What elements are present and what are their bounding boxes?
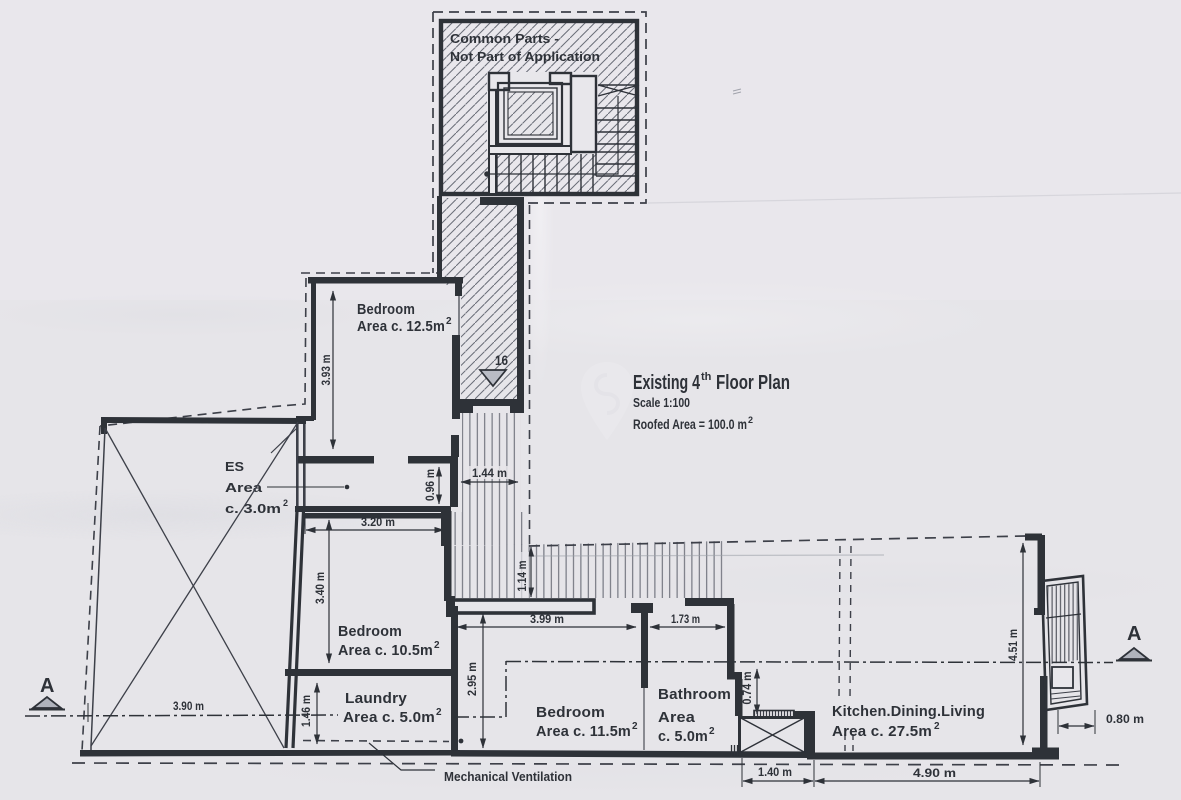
svg-text:Area c. 12.5m: Area c. 12.5m [357,318,445,335]
svg-text:4.51 m: 4.51 m [1008,629,1020,661]
svg-text:Not Part of Application: Not Part of Application [450,49,600,64]
svg-text:2.95 m: 2.95 m [467,662,479,696]
svg-text:1.14 m: 1.14 m [517,561,529,592]
svg-text:3.20 m: 3.20 m [361,517,395,529]
svg-text:1.73 m: 1.73 m [671,614,700,626]
svg-text:Floor Plan: Floor Plan [716,372,790,394]
svg-text:1.40 m: 1.40 m [758,767,792,779]
svg-text:Bedroom: Bedroom [338,623,402,640]
svg-text:Bedroom: Bedroom [357,301,415,318]
svg-text:0.74 m: 0.74 m [742,672,754,705]
svg-text:ES: ES [225,459,244,474]
svg-text:Area c. 10.5m: Area c. 10.5m [338,642,433,659]
svg-text:A: A [40,675,54,697]
svg-text:Area c. 27.5m: Area c. 27.5m [832,723,932,740]
svg-text:Area: Area [658,709,695,726]
svg-text:Bathroom: Bathroom [658,686,731,703]
svg-text:Area c. 11.5m: Area c. 11.5m [536,723,631,740]
svg-text:3.93 m: 3.93 m [321,355,333,386]
svg-text:2: 2 [446,316,452,327]
svg-text:3.40 m: 3.40 m [315,572,327,604]
svg-text:16: 16 [495,352,508,368]
svg-text:c. 3.0m: c. 3.0m [225,501,281,516]
svg-text:Kitchen.Dining.Living: Kitchen.Dining.Living [832,703,985,720]
svg-text:0.96 m: 0.96 m [425,469,437,501]
svg-text:1.44 m: 1.44 m [472,468,507,480]
svg-text:A: A [1127,623,1141,645]
svg-text:1.46 m: 1.46 m [301,695,313,727]
svg-text:3.90 m: 3.90 m [173,701,204,713]
svg-text:2: 2 [436,707,442,718]
svg-text:2: 2 [283,498,288,508]
svg-text:Area c. 5.0m: Area c. 5.0m [343,709,435,726]
svg-text:4.90 m: 4.90 m [913,768,956,780]
svg-text:0.80 m: 0.80 m [1106,714,1144,726]
svg-text:Existing 4: Existing 4 [633,372,701,394]
svg-text:Common Parts -: Common Parts - [450,31,559,46]
svg-text:2: 2 [934,721,940,732]
svg-text:th: th [701,371,712,383]
svg-text:Area: Area [225,480,263,495]
svg-text:Scale 1:100: Scale 1:100 [633,396,690,410]
svg-text:2: 2 [709,726,715,737]
svg-text:3.99 m: 3.99 m [530,614,564,626]
svg-text:2: 2 [748,415,753,425]
svg-text:2: 2 [434,640,440,651]
svg-text:Bedroom: Bedroom [536,704,605,721]
svg-text:Laundry: Laundry [345,690,407,707]
svg-text:2: 2 [632,721,638,732]
svg-text:Mechanical Ventilation: Mechanical Ventilation [444,769,572,784]
svg-text:c. 5.0m: c. 5.0m [658,728,708,745]
svg-text:Roofed Area = 100.0 m: Roofed Area = 100.0 m [633,417,747,432]
